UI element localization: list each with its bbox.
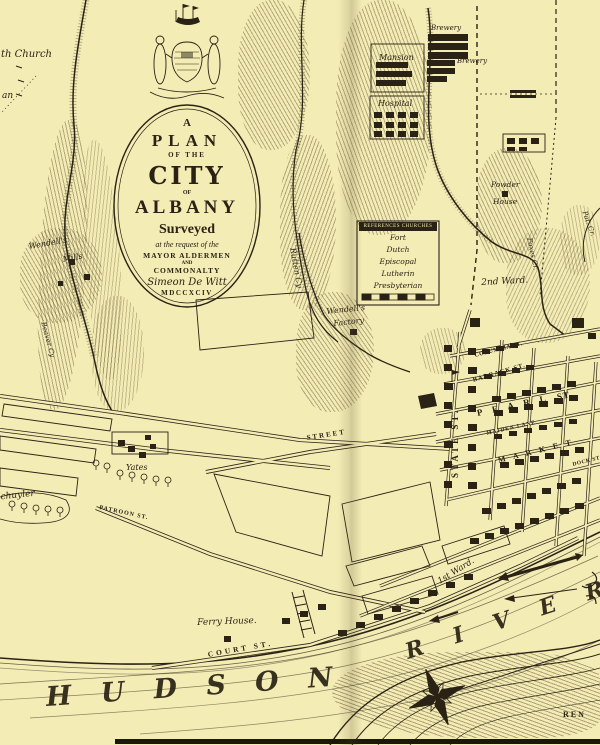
building-block	[139, 452, 146, 458]
cartouche-line: PLAN	[114, 132, 260, 150]
building-block	[128, 446, 135, 452]
building-block	[575, 447, 584, 453]
albany-map-page: APLANOF THECITYOFALBANYSurveyedat the re…	[0, 0, 600, 745]
building-block	[350, 329, 357, 335]
building-block	[567, 381, 576, 387]
building-block	[427, 60, 455, 66]
building-block	[554, 422, 562, 427]
building-block	[428, 34, 468, 41]
building-block	[537, 387, 546, 393]
cartouche-line: Simeon De Witt	[114, 278, 260, 289]
label-rensselaer-partial: REN	[563, 710, 586, 719]
building-block	[468, 444, 476, 451]
building-block	[386, 112, 394, 118]
tree-icon	[129, 472, 135, 482]
building-block	[84, 274, 90, 280]
building-block	[515, 523, 524, 529]
coat-of-arms	[150, 4, 224, 98]
building-block	[398, 122, 406, 128]
legend-header: REFERENCES CHURCHES	[359, 222, 437, 231]
building-block	[150, 444, 156, 449]
building-block	[545, 453, 554, 459]
building-block	[374, 112, 382, 118]
label-powder-house-2: House	[493, 197, 517, 206]
building-block	[386, 122, 394, 128]
tree-icon	[141, 474, 147, 484]
tree-icon	[117, 470, 123, 480]
cartouche-line: CITY	[114, 163, 260, 188]
building-block	[427, 68, 455, 74]
building-block	[531, 138, 539, 144]
label-state-st: STATE ST.	[450, 408, 460, 478]
building-block	[374, 614, 383, 620]
building-block	[468, 463, 476, 470]
legend-items: FortDutchEpiscopalLutherinPresbyterian	[357, 232, 439, 292]
shoreline-and-waves	[0, 532, 600, 745]
label-mansion: Mansion	[379, 53, 414, 62]
building-block	[560, 508, 569, 514]
building-block	[539, 425, 547, 430]
building-block	[545, 513, 554, 519]
building-block	[572, 478, 581, 484]
cartouche-line: MAYOR ALDERMEN	[114, 252, 260, 260]
building-block	[560, 450, 569, 456]
building-block	[444, 383, 453, 390]
building-block	[468, 405, 476, 412]
legend-item: Lutherin	[357, 268, 439, 280]
cartouche-line: OF THE	[114, 152, 260, 159]
building-block	[497, 503, 506, 509]
label-brewery-1: Brewery	[431, 24, 461, 32]
building-block	[572, 318, 584, 328]
building-block	[386, 131, 394, 137]
label-ferry-house: Ferry House.	[197, 616, 257, 628]
label-powder-house-1: Powder	[491, 180, 520, 189]
tree-icon	[9, 501, 15, 511]
building-block	[428, 43, 468, 50]
building-block	[444, 364, 452, 371]
legend-item: Dutch	[357, 244, 439, 256]
building-block	[374, 122, 382, 128]
cartouche-line: COMMONALTY	[114, 267, 260, 275]
title-cartouche: APLANOF THECITYOFALBANYSurveyedat the re…	[114, 104, 260, 310]
tree-icon	[104, 463, 110, 473]
building-block	[446, 582, 455, 588]
building-block	[500, 528, 509, 534]
building-block	[376, 80, 406, 86]
label-yates: Yates	[126, 463, 147, 472]
building-block	[427, 76, 447, 82]
building-block	[392, 606, 401, 612]
building-block	[444, 481, 452, 488]
building-block	[557, 483, 566, 489]
cartouche-line: at the request of the	[114, 241, 260, 249]
tree-icon	[33, 505, 39, 515]
building-block	[507, 393, 516, 399]
building-block	[468, 367, 477, 374]
building-block	[376, 62, 408, 68]
building-block	[470, 538, 479, 544]
dashed-road	[471, 6, 477, 305]
building-block	[530, 456, 539, 462]
building-block	[526, 365, 534, 370]
label-church-partial: th Church	[1, 49, 52, 60]
creek-lines	[2, 0, 600, 414]
building-block	[374, 131, 382, 137]
building-block	[118, 440, 125, 446]
building-block	[510, 90, 536, 93]
building-block	[512, 498, 521, 504]
building-block	[464, 574, 473, 580]
building-block	[282, 618, 290, 624]
building-block	[485, 533, 494, 539]
tree-icon	[21, 503, 27, 513]
building-block	[509, 431, 517, 436]
building-block	[410, 131, 418, 137]
building-block	[224, 636, 231, 642]
building-block	[492, 396, 501, 402]
tree-icon	[165, 477, 171, 487]
tree-icon	[153, 476, 159, 486]
building-block	[444, 345, 452, 352]
building-block	[575, 503, 584, 509]
building-block	[522, 390, 531, 396]
label-an-partial: an	[2, 91, 13, 101]
legend-item: Presbyterian	[357, 280, 439, 292]
building-block	[398, 131, 406, 137]
label-hospital: Hospital	[378, 99, 412, 108]
building-block	[468, 482, 477, 489]
building-block	[569, 419, 577, 424]
building-block	[410, 598, 419, 604]
building-block	[519, 147, 527, 151]
fort-block	[418, 393, 437, 409]
cartouche-line: Surveyed	[114, 223, 260, 238]
building-block	[507, 138, 515, 144]
building-block	[376, 71, 412, 77]
legend-item: Fort	[357, 232, 439, 244]
building-block	[145, 435, 151, 440]
building-block	[470, 318, 480, 327]
cartouche-line: OF	[114, 190, 260, 196]
building-block	[527, 493, 536, 499]
cartouche-line: MDCCXCIV	[114, 290, 260, 297]
building-block	[524, 428, 532, 433]
roads	[0, 0, 600, 668]
label-brewery-2: Brewery	[457, 57, 487, 65]
legend-box: REFERENCES CHURCHES FortDutchEpiscopalLu…	[357, 221, 439, 305]
building-block	[519, 138, 527, 144]
building-block	[410, 122, 418, 128]
building-block	[542, 488, 551, 494]
tree-icon	[57, 507, 63, 517]
building-block	[468, 424, 477, 431]
cartouche-line: A	[114, 118, 260, 130]
building-block	[552, 384, 561, 390]
building-block	[318, 604, 326, 610]
building-block	[530, 518, 539, 524]
building-block	[428, 590, 437, 596]
legend-item: Episcopal	[357, 256, 439, 268]
cartouche-line: ALBANY	[114, 198, 260, 218]
building-block	[58, 281, 63, 286]
building-block	[356, 622, 365, 628]
building-block	[510, 95, 536, 98]
building-block	[468, 386, 476, 393]
building-block	[410, 112, 418, 118]
tree-icon	[45, 506, 51, 516]
building-block	[338, 630, 347, 636]
building-block	[507, 147, 515, 151]
building-block	[482, 508, 491, 514]
building-block	[588, 333, 596, 339]
building-block	[398, 112, 406, 118]
